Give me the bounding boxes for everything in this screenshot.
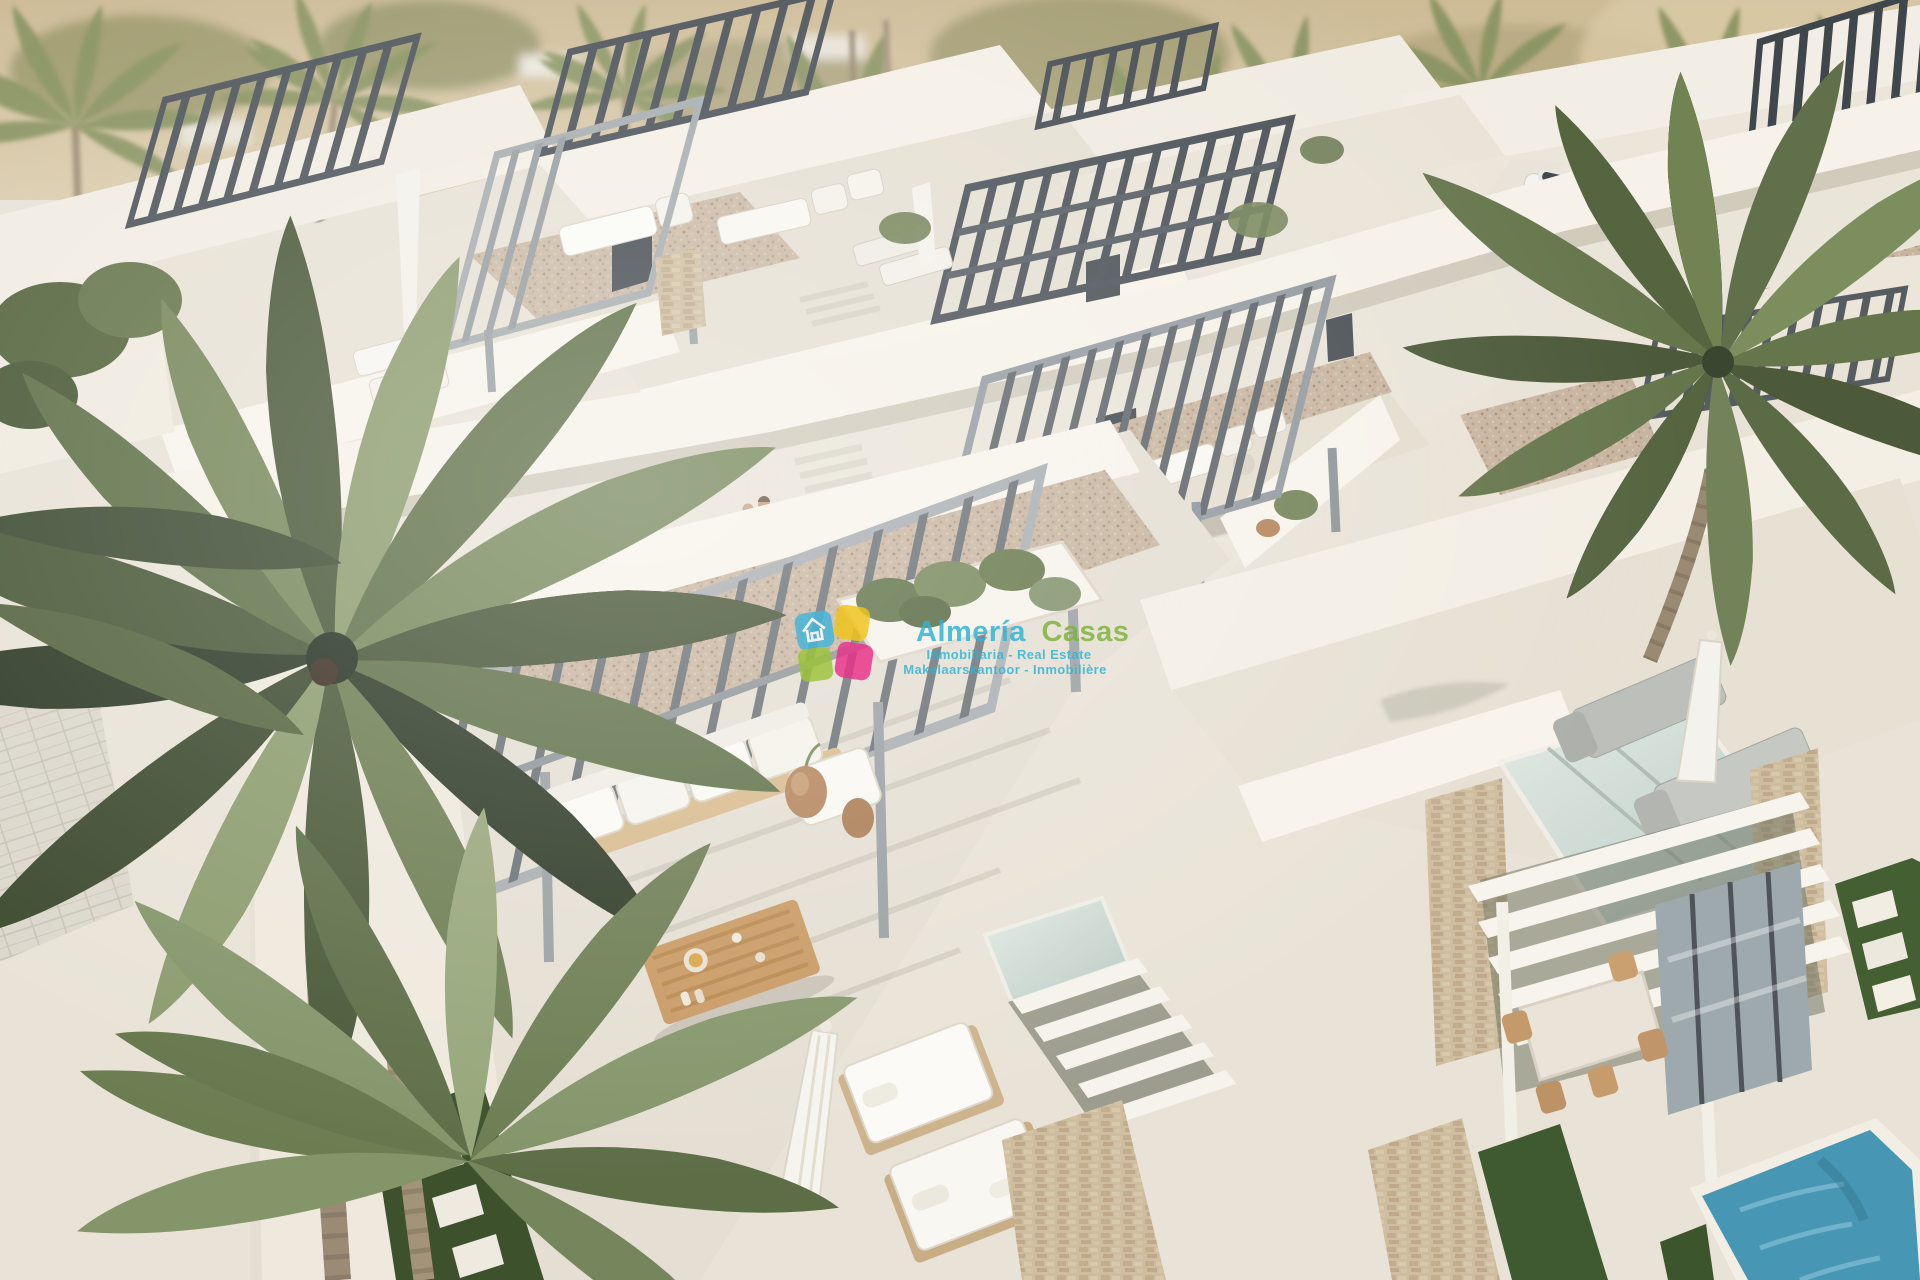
brand-name-first: Almería	[916, 616, 1026, 648]
logo-square-blue	[793, 609, 835, 651]
logo-square-yellow	[833, 604, 871, 642]
watermark-logo: Almería Casas Inmobiliaria - Real Estate…	[793, 604, 1129, 683]
rendered-photo: Almería Casas Inmobiliaria - Real Estate…	[0, 0, 1920, 1280]
logo-square-green	[797, 646, 834, 683]
logo-square-pink	[833, 640, 874, 681]
brand-tagline-1: Inmobiliaria - Real Estate	[926, 647, 1091, 662]
brand-name-second: Casas	[1041, 616, 1129, 648]
brand-tagline-2: Makelaarskantoor - Inmobilière	[903, 662, 1106, 677]
brand-name: Almería Casas	[916, 616, 1129, 648]
